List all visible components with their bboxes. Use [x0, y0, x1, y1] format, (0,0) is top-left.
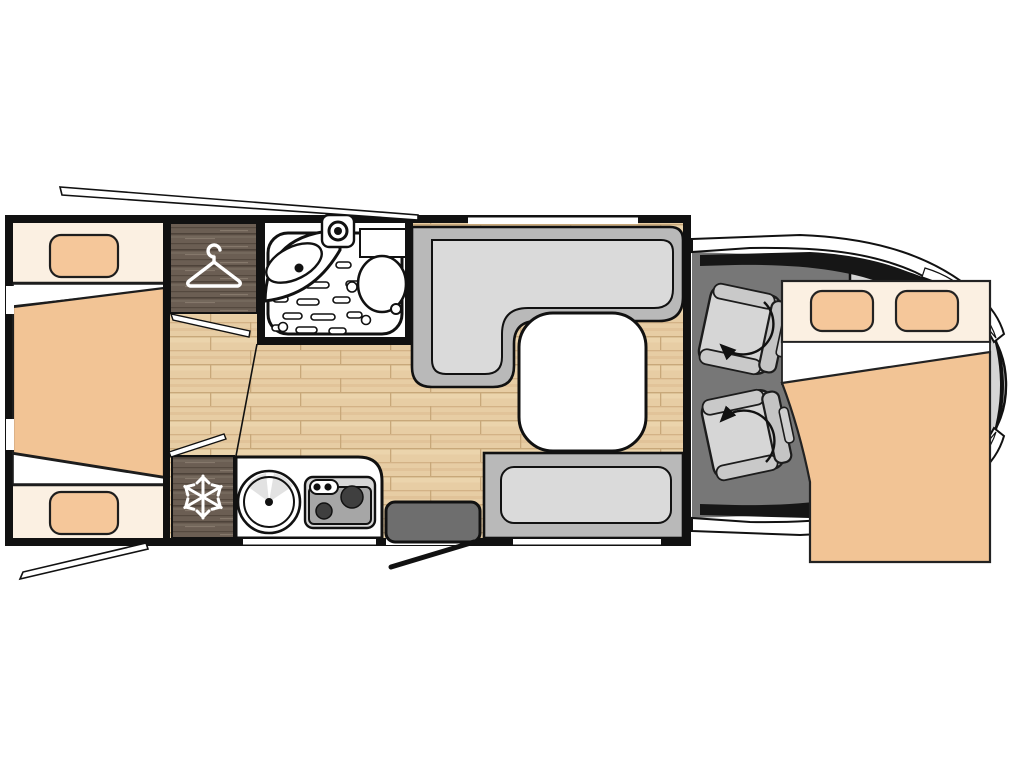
- bathroom-wall-left: [257, 223, 265, 345]
- entry-door: [386, 502, 480, 567]
- floorplan-svg: [0, 0, 1024, 768]
- rear-bed-blanket: [13, 288, 164, 477]
- drop-bed-pillow-right: [896, 291, 958, 331]
- wardrobe: [170, 223, 257, 313]
- washbasin-drain: [295, 264, 304, 273]
- window-slit-left-lower: [6, 419, 14, 450]
- open-flap-bottom-left: [20, 543, 148, 579]
- stove-knob-1: [313, 483, 320, 490]
- bathroom: [257, 215, 413, 345]
- window-slit-left-upper: [6, 286, 14, 314]
- rear-bedroom: [6, 223, 170, 538]
- toilet-cistern: [360, 229, 406, 257]
- dining-table: [519, 313, 646, 451]
- stove-burner-large: [341, 486, 363, 508]
- floorplan-page: [0, 0, 1024, 768]
- toilet-flush: [391, 304, 401, 314]
- bathroom-wall-bottom: [257, 337, 413, 345]
- drop-down-bed: [782, 281, 990, 562]
- kitchen: [236, 457, 382, 538]
- rear-bed-pillow-top: [50, 235, 118, 277]
- stove-burner-small: [316, 503, 332, 519]
- drop-bed-blanket: [782, 352, 990, 562]
- toilet: [358, 256, 406, 312]
- stove-knob-2: [324, 483, 331, 490]
- window-gap-bottom-bench: [513, 539, 661, 545]
- kitchen-sink-drain: [265, 498, 273, 506]
- shower-head-center: [334, 227, 342, 235]
- window-gap-bottom-kitchen: [243, 539, 376, 545]
- bedroom-partition-wall: [163, 223, 170, 538]
- window-gap-top: [468, 218, 638, 225]
- drop-bed-pillow-left: [811, 291, 873, 331]
- side-bench-cushion: [501, 467, 671, 523]
- entry-step: [386, 502, 480, 542]
- rear-bed-pillow-bottom: [50, 492, 118, 534]
